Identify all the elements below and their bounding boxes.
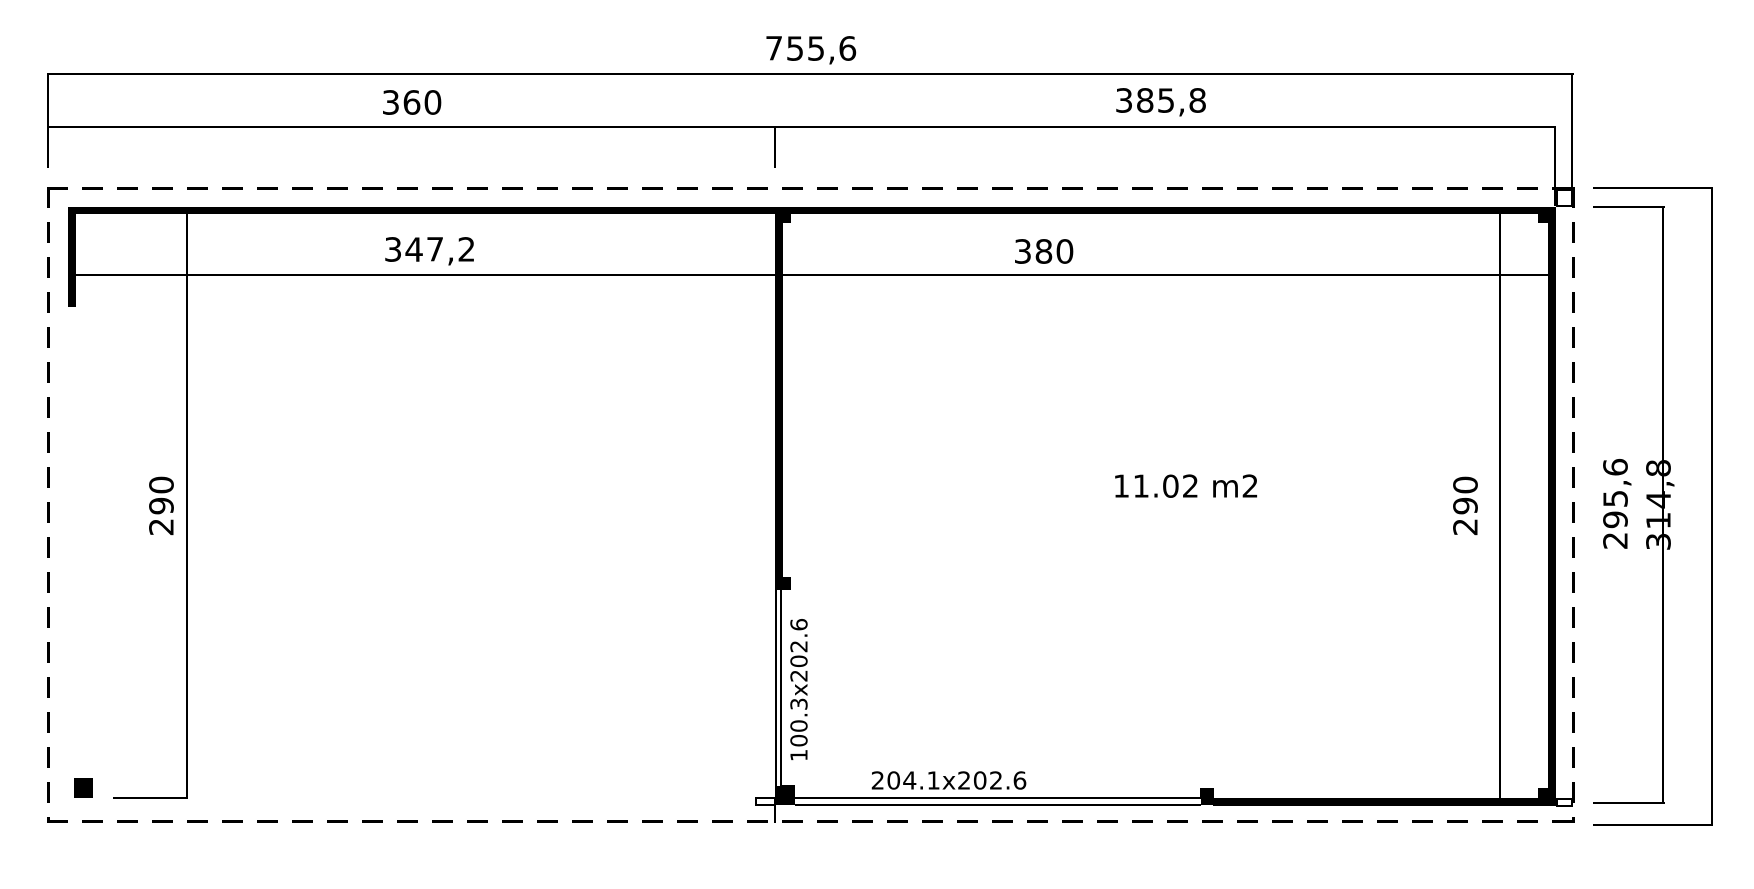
roof-outline-bottom xyxy=(47,820,1575,823)
overall-width-label: 755,6 xyxy=(764,33,858,66)
left-inner-width-label: 347,2 xyxy=(383,234,477,267)
post-front-right xyxy=(1200,788,1214,805)
left-return-wall xyxy=(68,207,76,307)
floor-plan-canvas: 755,6 360 385,8 347,2 380 290 290 295,6 … xyxy=(0,0,1754,889)
right-wall xyxy=(1548,207,1556,806)
joint-right-bottom xyxy=(1538,788,1548,799)
left-extension-line xyxy=(47,73,49,168)
outer-depth-label: 295,6 xyxy=(1600,457,1633,551)
front-door-opening xyxy=(795,797,1201,806)
left-bay-width-label: 360 xyxy=(381,87,444,120)
roof-outline-top xyxy=(47,187,1575,190)
roof-outline-left xyxy=(47,187,50,823)
right-bay-width-label: 385,8 xyxy=(1114,85,1208,118)
joint-right-top xyxy=(1538,212,1548,223)
section-width-dimension-line xyxy=(48,126,1556,128)
right-depth-dimension-line xyxy=(1499,213,1501,799)
outer-depth-top-tick xyxy=(1593,206,1665,208)
total-depth-top-tick xyxy=(1593,187,1713,189)
side-door-opening xyxy=(775,590,782,786)
joint-middle-bottom xyxy=(775,577,791,590)
middle-section-tick xyxy=(774,126,776,168)
right-depth-label: 290 xyxy=(1450,475,1483,538)
top-wall xyxy=(68,207,1556,214)
door-sill-right-stub xyxy=(1556,798,1573,807)
inner-width-dimension-line xyxy=(75,274,1549,276)
room-area-label: 11.02 m2 xyxy=(1112,473,1261,504)
corner-post-left xyxy=(74,778,93,798)
side-door-size-label: 100.3x202.6 xyxy=(790,617,813,762)
left-depth-dimension-line xyxy=(186,213,188,799)
outer-depth-bottom-tick xyxy=(1593,802,1665,804)
middle-wall xyxy=(775,207,783,590)
left-depth-label: 290 xyxy=(146,475,179,538)
front-door-size-label: 204.1x202.6 xyxy=(870,769,1028,794)
total-depth-bottom-tick xyxy=(1593,824,1713,826)
left-depth-bottom-tick xyxy=(113,797,188,799)
total-depth-label: 314,8 xyxy=(1643,458,1676,552)
middle-bottom-extension-line xyxy=(774,805,776,823)
joint-middle-top xyxy=(783,212,791,223)
roof-edge-right-stub xyxy=(1556,189,1573,207)
right-outer-extension-line xyxy=(1571,73,1573,188)
post-front-middle xyxy=(775,785,795,805)
right-inner-width-label: 380 xyxy=(1013,236,1076,269)
roof-outline-right xyxy=(1572,187,1575,823)
door-sill-left-stub xyxy=(755,797,776,806)
total-depth-dimension-line xyxy=(1711,188,1713,826)
overall-width-dimension-line xyxy=(48,73,1574,75)
bottom-wall xyxy=(1213,798,1556,806)
